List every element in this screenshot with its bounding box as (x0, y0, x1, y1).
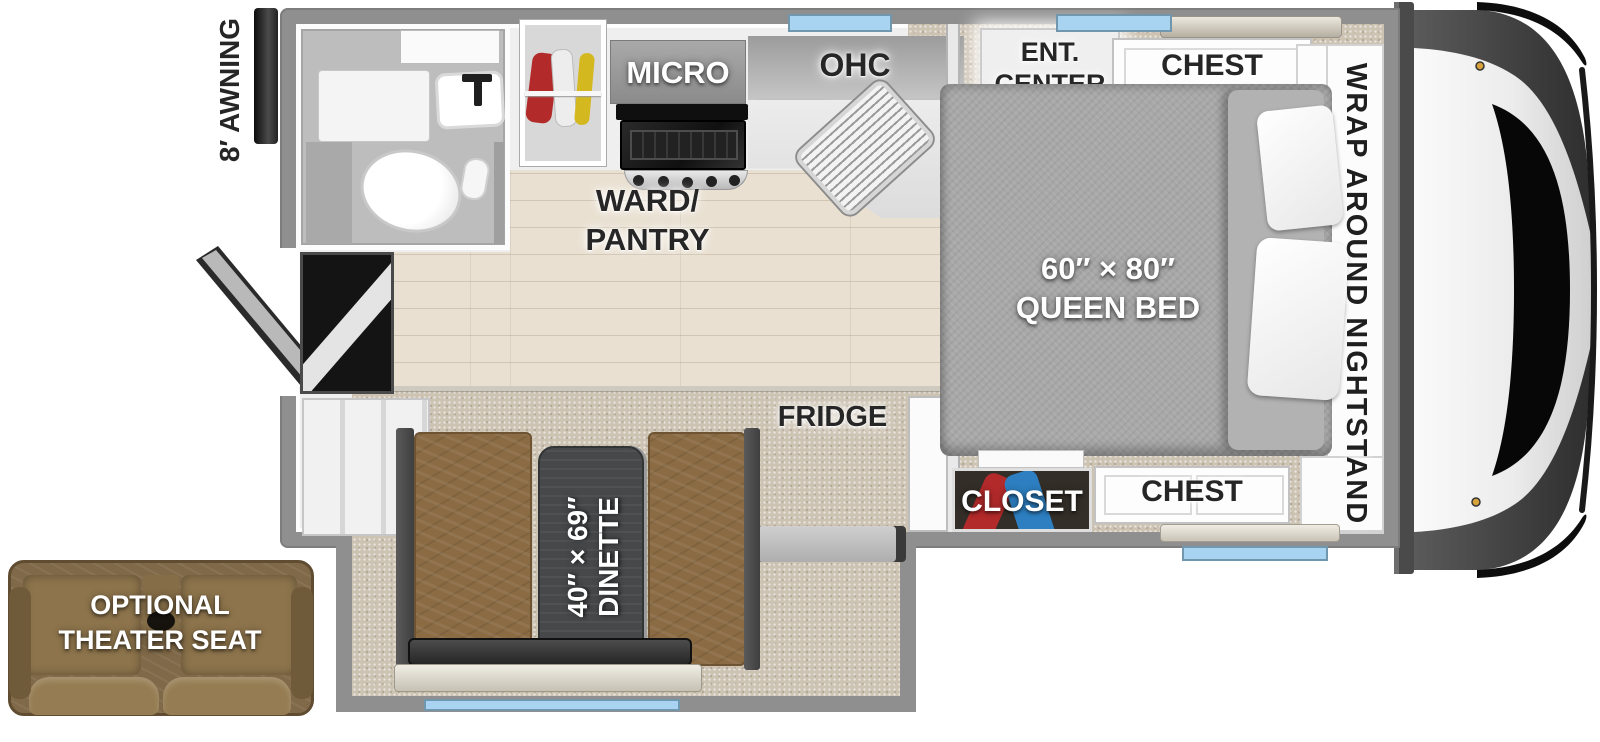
window (1056, 14, 1172, 32)
dinette-end-panel (396, 428, 414, 670)
entry-step-platform (748, 526, 906, 562)
door-frame (300, 252, 394, 394)
ent-center-line1: ENT. (980, 36, 1120, 68)
queen-bed-label: 60″ × 80″ QUEEN BED (948, 250, 1268, 328)
ohc-label: OHC (770, 48, 940, 83)
queen-bed-line1: 60″ × 80″ (948, 250, 1268, 289)
bay-wall-left (336, 544, 352, 712)
closet-label: CLOSET (946, 486, 1098, 518)
theater-seat-line1: OPTIONAL (10, 588, 310, 623)
hanging-clothes-yellow (574, 52, 595, 125)
range-hood (616, 104, 748, 120)
window (1182, 546, 1328, 561)
fridge-label: FRIDGE (760, 402, 905, 433)
micro-label: MICRO (610, 56, 746, 89)
dinette-end-panel (744, 428, 760, 670)
awning (254, 8, 278, 144)
chest-bottom-label: CHEST (1094, 476, 1290, 508)
bathroom-shelf (400, 30, 500, 64)
door-glass-glare (300, 252, 394, 394)
ward-pantry-line2: PANTRY (560, 221, 735, 260)
stove-grate (630, 130, 738, 160)
queen-bed-line2: QUEEN BED (948, 289, 1268, 328)
truck-cab (1392, 0, 1600, 580)
window (424, 699, 680, 711)
theater-seat-cushion (163, 677, 291, 715)
nightstand-label: WRAP AROUND NIGHTSTAND (1339, 44, 1371, 544)
bathroom-counter (318, 70, 430, 142)
ward-pantry-line1: WARD/ (560, 182, 735, 221)
chest-top-label: CHEST (1112, 50, 1312, 82)
theater-seat-label: OPTIONAL THEATER SEAT (10, 588, 310, 658)
dinette-bench-left (414, 432, 532, 666)
closet-rod (525, 91, 601, 96)
bay-wall-right (900, 544, 916, 712)
awning-label: 8′ AWNING (215, 0, 245, 190)
overhead-trim (1160, 16, 1342, 38)
entry-mat (408, 638, 692, 666)
bed-step (1160, 524, 1340, 542)
bath-divider (494, 142, 504, 244)
shower-wall (306, 142, 352, 244)
wardrobe (520, 20, 606, 166)
faucet-icon (462, 74, 492, 82)
entry-step (394, 664, 702, 692)
theater-seat-line2: THEATER SEAT (10, 623, 310, 658)
window (788, 14, 892, 32)
pillow (1256, 104, 1344, 231)
stove (620, 120, 746, 170)
theater-seat-cushion (29, 677, 159, 715)
ward-pantry-label: WARD/ PANTRY (560, 182, 735, 260)
cab-marker-light (1476, 62, 1484, 70)
cab-marker-light (1472, 498, 1480, 506)
floorplan: 8′ AWNING MICRO (0, 0, 1600, 742)
floor-transition-strip (300, 386, 948, 391)
closet-shelf (978, 450, 1084, 468)
dinette-bench-right (648, 432, 746, 666)
